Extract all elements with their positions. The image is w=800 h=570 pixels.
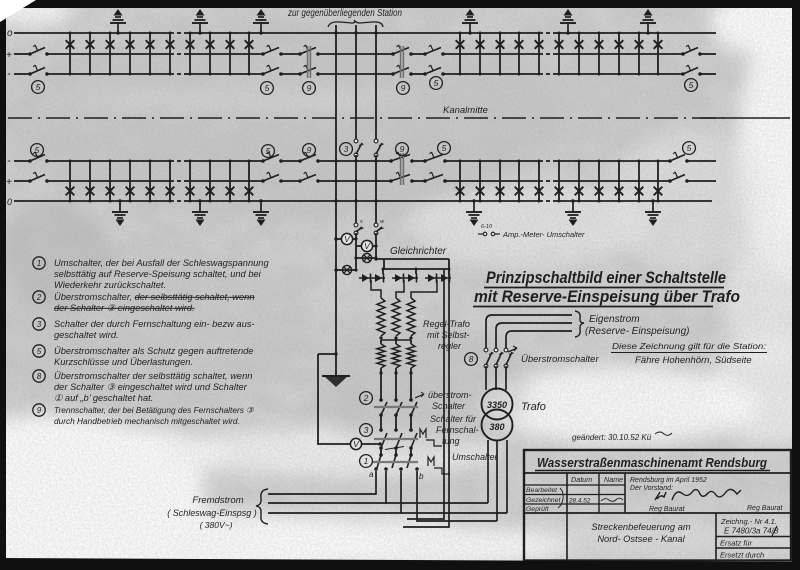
svg-text:Schalter für: Schalter für: [430, 414, 477, 424]
svg-text:Überstromschalter der selbsttä: Überstromschalter der selbsttätig schalt…: [54, 371, 252, 381]
svg-text:E 7480/3a 74/8: E 7480/3a 74/8: [724, 527, 779, 536]
svg-text:Wasserstraßenmaschinenamt Ren: Wasserstraßenmaschinenamt Rendsburg: [537, 455, 767, 470]
svg-text:geschaltet wird.: geschaltet wird.: [54, 330, 119, 340]
svg-text:der Schalter ③ eingeschaltet w: der Schalter ③ eingeschaltet wird und Sc…: [54, 382, 248, 392]
svg-text:Prinzipschaltbild einer Schalt: Prinzipschaltbild einer Schaltstelle: [486, 268, 726, 287]
svg-text:regler: regler: [438, 341, 462, 351]
svg-text:Ersatz für: Ersatz für: [720, 539, 753, 548]
svg-text:Name: Name: [604, 475, 623, 484]
svg-text:Zeichng.- Nr 4.1.: Zeichng.- Nr 4.1.: [720, 517, 777, 526]
svg-text:Kurzschlüsse und Überlastunge: Kurzschlüsse und Überlastungen.: [54, 357, 193, 367]
svg-text:5: 5: [266, 146, 271, 156]
svg-text:5: 5: [36, 82, 41, 92]
svg-text:8: 8: [469, 354, 474, 364]
svg-text:3: 3: [344, 144, 349, 154]
svg-text:5: 5: [35, 145, 40, 155]
svg-text:Umschalter: Umschalter: [452, 452, 499, 462]
svg-text:380: 380: [489, 422, 504, 432]
svg-text:Schalter der durch Fernschaltu: Schalter der durch Fernschaltung ein- be…: [54, 319, 255, 329]
svg-text:Geprüft: Geprüft: [526, 506, 550, 513]
svg-text:( 380V~): ( 380V~): [200, 520, 233, 530]
svg-text:5: 5: [265, 83, 270, 93]
svg-text:0: 0: [7, 197, 12, 207]
svg-text:Datum: Datum: [571, 475, 592, 484]
svg-text:3: 3: [37, 320, 42, 329]
svg-text:Trafo: Trafo: [521, 401, 546, 413]
svg-text:+: +: [6, 50, 12, 61]
svg-text:Nord- Ostsee - Kanal: Nord- Ostsee - Kanal: [597, 534, 685, 544]
svg-text:5: 5: [434, 78, 439, 88]
svg-text:Reg Baurat: Reg Baurat: [747, 505, 783, 512]
svg-text:Umschalter, der bei Ausfall de: Umschalter, der bei Ausfall der Schleswa…: [54, 258, 269, 268]
svg-text:-: -: [7, 155, 11, 167]
svg-text:Überstromschalter als Schutz g: Überstromschalter als Schutz gegen auftr…: [54, 346, 253, 356]
svg-text:Fremdstrom: Fremdstrom: [192, 495, 243, 506]
svg-text:① auf „b’ geschaltet hat.: ① auf „b’ geschaltet hat.: [54, 393, 153, 403]
svg-text:Amp.-Meter- Umschalter: Amp.-Meter- Umschalter: [502, 230, 585, 239]
svg-text:selbsttätig auf Reserve-Speisu: selbsttätig auf Reserve-Speisung schalte…: [54, 269, 262, 279]
svg-text:Ersetzt durch: Ersetzt durch: [720, 551, 764, 560]
svg-text:9: 9: [307, 83, 312, 93]
svg-text:Der Vorstand:: Der Vorstand:: [630, 485, 673, 492]
svg-text:b: b: [419, 472, 424, 481]
svg-text:9: 9: [307, 145, 312, 155]
svg-text:mit Reserve-Einspeisung über T: mit Reserve-Einspeisung über Trafo: [474, 287, 740, 306]
svg-text:Trennschalter, der bei Betätig: Trennschalter, der bei Betätigung des Fe…: [54, 405, 254, 415]
svg-text:5: 5: [37, 347, 42, 356]
svg-text:2: 2: [363, 393, 369, 403]
svg-text:2: 2: [36, 293, 42, 302]
svg-text:Überstromschalter, der selbstt: Überstromschalter, der selbsttätig schal…: [54, 292, 255, 302]
svg-text:Rendsburg im April 1952: Rendsburg im April 1952: [630, 477, 707, 484]
svg-text:9: 9: [401, 83, 406, 93]
svg-text:9: 9: [400, 144, 405, 154]
svg-text:geändert: 30.10.52 Kü: geändert: 30.10.52 Kü: [572, 433, 652, 442]
svg-text:zur gegenüberliegenden Station: zur gegenüberliegenden Station: [287, 8, 402, 19]
svg-text:Wiederkehr zurückschaltet.: Wiederkehr zurückschaltet.: [54, 280, 166, 290]
svg-text:5: 5: [687, 143, 692, 153]
svg-text:3: 3: [364, 425, 369, 435]
svg-text:9: 9: [37, 406, 42, 415]
svg-text:5: 5: [689, 80, 694, 90]
svg-text:Überstromschalter: Überstromschalter: [521, 354, 599, 365]
svg-text:Fähre Hohenhörn, Südseite: Fähre Hohenhörn, Südseite: [635, 355, 752, 366]
svg-text:6-10: 6-10: [481, 224, 493, 230]
svg-text:Eigenstrom: Eigenstrom: [589, 314, 640, 325]
svg-text:+: +: [6, 177, 12, 188]
svg-text:1: 1: [364, 456, 369, 466]
svg-text:Diese Zeichnung gilt für die: Diese Zeichnung gilt für die Station:: [612, 341, 767, 351]
svg-text:28.4.52: 28.4.52: [568, 498, 591, 505]
svg-text:1: 1: [37, 259, 41, 268]
svg-text:Fernschal-: Fernschal-: [436, 425, 479, 435]
svg-text:der Schalter ③ eingeschaltet w: der Schalter ③ eingeschaltet wird.: [54, 303, 195, 313]
svg-text:durch Handbetrieb mechanisch m: durch Handbetrieb mechanisch mitgeschalt…: [54, 416, 240, 426]
svg-text:5: 5: [442, 143, 447, 153]
svg-text:Kanalmitte: Kanalmitte: [443, 105, 488, 116]
svg-text:o: o: [7, 28, 13, 39]
svg-text:a: a: [369, 470, 374, 479]
svg-text:Streckenbefeuerung am: Streckenbefeuerung am: [591, 522, 690, 532]
svg-text:Gleichrichter: Gleichrichter: [390, 246, 447, 257]
svg-text:Gezeichnet: Gezeichnet: [526, 497, 561, 504]
svg-text:3350: 3350: [487, 400, 507, 410]
svg-text:Reg Baurat: Reg Baurat: [649, 506, 685, 513]
svg-text:( Schleswag-Einspsg ): ( Schleswag-Einspsg ): [167, 508, 257, 518]
svg-text:s: s: [360, 219, 363, 225]
svg-text:(Reserve- Einspeisung): (Reserve- Einspeisung): [585, 326, 690, 337]
svg-text:Regel-Trafo: Regel-Trafo: [423, 319, 470, 329]
svg-text:-: -: [7, 68, 11, 80]
svg-text:8: 8: [37, 372, 42, 381]
svg-text:Bearbeitet: Bearbeitet: [526, 487, 558, 494]
